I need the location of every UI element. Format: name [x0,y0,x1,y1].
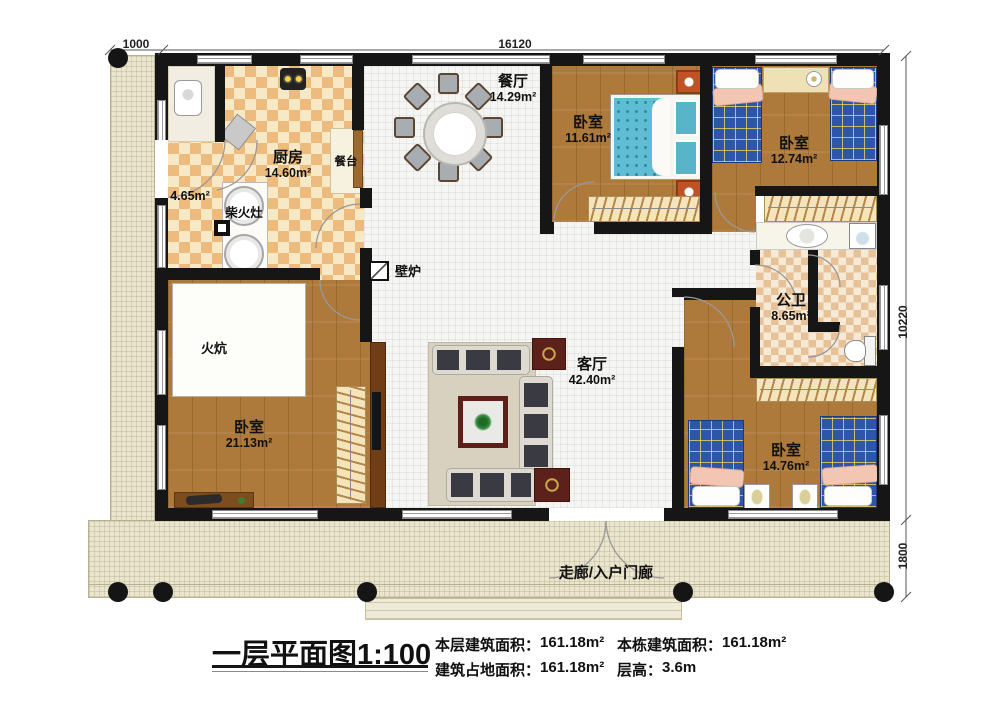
wall [168,268,320,280]
bedroom2-door-area [712,186,756,232]
room-label-bedroom3: 卧室 21.13m² [226,419,273,451]
window [157,330,166,395]
room-label-bathroom: 公卫 8.65m² [771,292,811,324]
wardrobe-rail [350,390,351,500]
room-area: 12.74m² [771,152,818,166]
entry-steps [365,598,682,620]
room-area: 14.60m² [265,166,312,180]
label-porch: 走廊/入户门廊 [559,564,653,581]
dining-table-top [433,112,477,156]
column [357,582,377,602]
room-name: 卧室 [771,135,818,152]
floor-mat [534,468,570,502]
window [755,55,837,64]
toilet-bowl [844,340,866,362]
wall [360,280,372,342]
floor-plan: 餐厅 14.29m² 卧室 11.61m² 卧室 12.74m² 厨房 14.6… [0,0,1000,706]
headboard-cushion [674,100,698,136]
bed-blanket [689,466,744,488]
window [300,55,353,64]
bed-pillow [832,69,874,89]
stat-value: 161.18m² [722,634,786,655]
wall [755,186,877,196]
floor-mat [532,338,566,370]
room-area: 14.76m² [763,459,810,473]
stat-building-area: 本栋建筑面积：161.18m² [617,634,786,655]
desk-plant [238,497,245,504]
title-underline-thin [212,671,428,672]
room-area: 21.13m² [226,436,273,450]
headboard-cushion [674,140,698,176]
stat-label: 层高： [617,659,662,680]
wall [594,222,712,234]
feature-name: 走廊/入户门廊 [559,564,653,581]
dimension-porch-depth: 1800 [896,543,910,570]
wardrobe [336,386,366,504]
wardrobe-rail [592,208,696,209]
label-serving-counter: 餐台 [335,152,358,170]
wall [672,347,684,508]
label-kang: 火炕 [201,340,227,358]
column [673,582,693,602]
room-label-kitchen: 厨房 14.60m² [265,149,312,181]
stat-value: 161.18m² [540,634,604,655]
label-pantry-area: 4.65m² [170,189,210,203]
stat-value: 161.18m² [540,659,604,680]
room-area: 11.61m² [565,131,611,145]
dimension-porch-width: 1000 [123,37,150,51]
wardrobe [588,196,700,222]
window [879,125,888,195]
stats-row-1: 本层建筑面积：161.18m² 本栋建筑面积：161.18m² [435,634,786,655]
wall [672,288,684,297]
column [108,582,128,602]
nightstand [792,484,818,510]
window [197,55,252,64]
dining-chair [394,117,415,138]
room-name: 卧室 [565,114,611,131]
nightstand [676,70,702,94]
porch-edge-line [88,584,890,585]
coffee-table [458,396,508,448]
stats-row-2: 建筑占地面积：161.18m² 层高：3.6m [435,659,696,680]
label-wood-stove: 柴火灶 [225,204,263,222]
stat-floor-area: 本层建筑面积：161.18m² [435,634,617,655]
bed-pillow [692,486,740,506]
bed-sheet-fold [652,98,670,176]
room-name: 厨房 [265,149,312,166]
room-area: 8.65m² [771,309,811,323]
window [412,55,550,64]
room-label-living: 客厅 42.40m² [569,356,616,388]
column [153,582,173,602]
room-name: 客厅 [569,356,616,373]
window [879,415,888,485]
stat-storey-height: 层高：3.6m [617,659,696,680]
room-name: 卧室 [226,419,273,436]
dimension-house-width: 16120 [498,37,531,51]
stove-firebox-door [218,224,226,232]
kitchen-sink [174,80,202,116]
kitchen-entry-opening [155,140,168,198]
room-name: 公卫 [771,292,811,309]
wall [684,288,756,300]
dining-chair [438,73,459,94]
room-label-dining: 餐厅 14.29m² [490,73,537,105]
room-area: 42.40m² [569,373,616,387]
room-area: 4.65m² [170,189,210,203]
room-area: 14.29m² [490,90,537,104]
window [157,205,166,268]
bed-pillow [715,69,759,89]
window [583,55,665,64]
wall [360,188,372,208]
table-lamp [806,71,822,87]
dimension-house-depth: 10220 [896,305,910,338]
bed-pillow [824,486,872,506]
stove-icon [280,68,306,90]
feature-name: 火炕 [201,341,227,356]
wardrobe [756,378,877,402]
room-name: 卧室 [763,442,810,459]
column [874,582,894,602]
wall [540,222,554,234]
window [728,510,838,519]
wall [750,250,760,265]
bath-sink [786,224,828,248]
stat-label: 本层建筑面积： [435,634,540,655]
title-underline-thick [212,665,428,668]
tv-icon [372,392,381,450]
feature-name: 柴火灶 [225,206,263,220]
nightstand [744,484,770,510]
sofa-bottom [446,468,536,502]
stat-label: 本栋建筑面积： [617,634,722,655]
column [108,48,128,68]
wall [352,66,364,130]
closet-rail [768,207,873,208]
room-label-bedroom1: 卧室 11.61m² [565,114,611,146]
porch-left-strip [110,55,155,521]
room-label-bedroom2: 卧室 12.74m² [771,135,818,167]
window [402,510,512,519]
label-fireplace: 壁炉 [395,263,421,281]
washing-machine [849,223,876,249]
sofa-top [432,345,530,375]
wall [756,366,877,378]
sofa-right [519,376,553,472]
room-name: 餐厅 [490,73,537,90]
wall [540,66,552,230]
kang-bed [172,283,306,397]
stat-value: 3.6m [662,659,696,680]
fireplace-icon [369,261,389,281]
stat-label: 建筑占地面积： [435,659,540,680]
porch-bottom-strip [88,520,890,598]
window [157,425,166,490]
room-label-bedroom4: 卧室 14.76m² [763,442,810,474]
wall [215,66,225,142]
closet [764,194,877,222]
window [212,510,318,519]
feature-name: 壁炉 [395,264,421,279]
stat-footprint-area: 建筑占地面积：161.18m² [435,659,617,680]
entrance-opening [549,508,664,521]
wall [700,66,712,230]
window [879,285,888,350]
wall [808,322,840,332]
feature-name: 餐台 [335,156,358,168]
wardrobe-rail [760,389,873,390]
